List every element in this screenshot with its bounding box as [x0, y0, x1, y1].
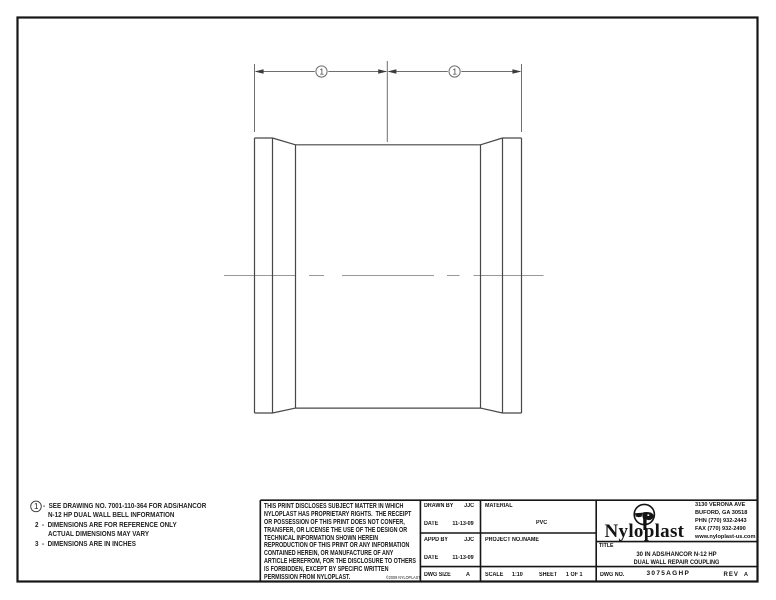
svg-text:1: 1: [452, 66, 457, 76]
svg-text:1: 1: [319, 66, 324, 76]
svg-text:1: 1: [34, 502, 39, 511]
